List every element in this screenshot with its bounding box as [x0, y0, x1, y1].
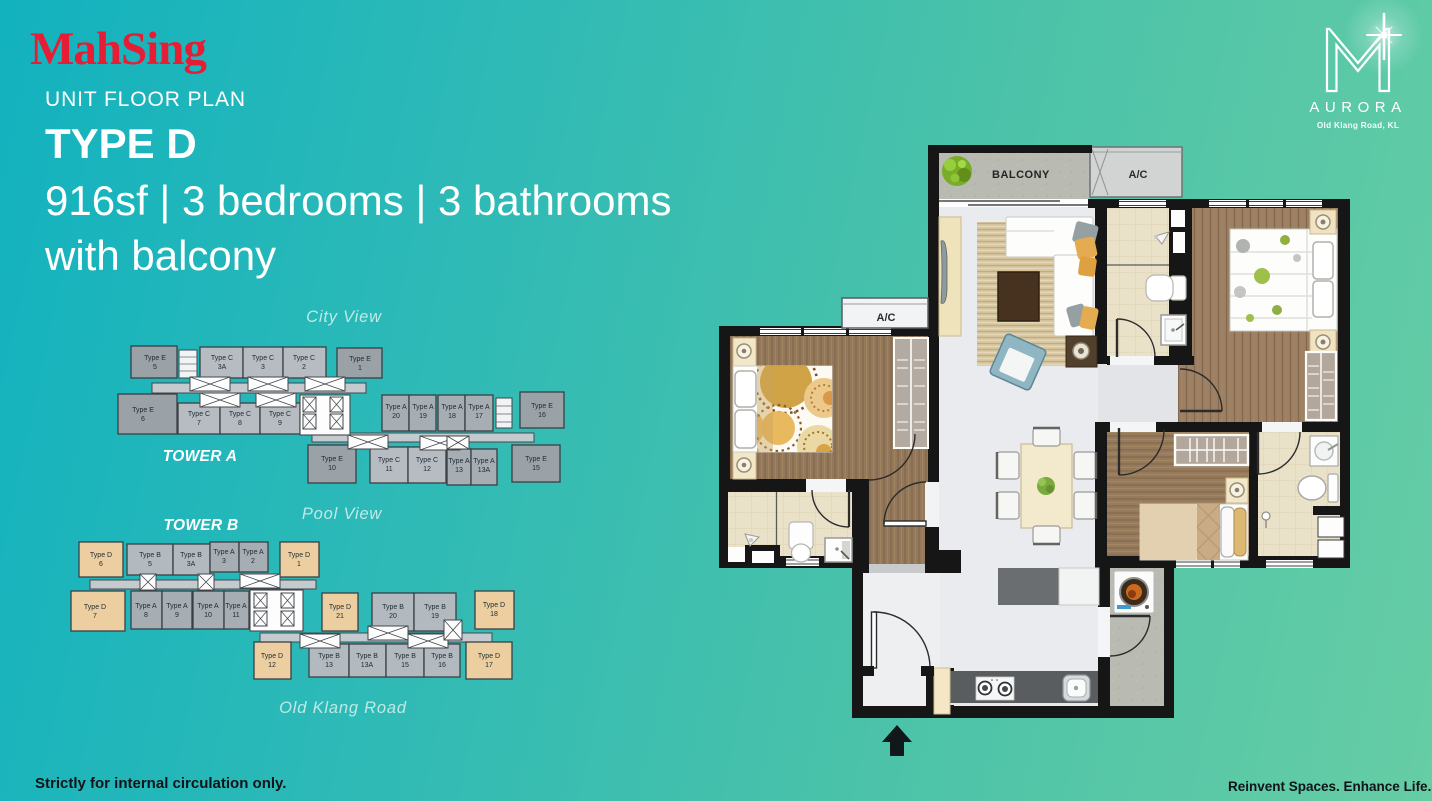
svg-text:Type B: Type B: [139, 552, 161, 559]
svg-text:17: 17: [485, 662, 493, 669]
svg-text:Type D: Type D: [288, 552, 310, 559]
svg-text:13A: 13A: [361, 662, 374, 669]
svg-text:11: 11: [385, 466, 392, 473]
svg-text:A/C: A/C: [1129, 169, 1148, 181]
svg-text:1: 1: [358, 365, 362, 372]
svg-text:3: 3: [222, 558, 226, 565]
svg-text:TOWER A: TOWER A: [163, 448, 237, 465]
svg-text:Type C: Type C: [293, 355, 315, 362]
svg-text:Type B: Type B: [180, 552, 202, 559]
svg-text:Type A: Type A: [242, 549, 264, 556]
svg-text:Type C: Type C: [188, 411, 210, 418]
svg-text:3A: 3A: [187, 561, 196, 568]
svg-text:Type C: Type C: [229, 411, 251, 418]
svg-text:13A: 13A: [478, 467, 491, 474]
svg-text:12: 12: [423, 466, 431, 473]
svg-text:Type E: Type E: [321, 456, 343, 463]
svg-text:Type D: Type D: [90, 552, 112, 559]
svg-text:9: 9: [175, 612, 179, 619]
svg-text:Type B: Type B: [394, 653, 416, 660]
svg-text:Type B: Type B: [424, 604, 446, 611]
svg-text:12: 12: [268, 662, 276, 669]
svg-text:10: 10: [204, 612, 212, 619]
svg-text:15: 15: [401, 662, 409, 669]
svg-text:Pool View: Pool View: [302, 505, 383, 523]
svg-text:Type B: Type B: [382, 604, 404, 611]
svg-text:8: 8: [238, 420, 242, 427]
svg-text:16: 16: [438, 662, 446, 669]
svg-text:13: 13: [325, 662, 333, 669]
svg-text:Old Klang Road, KL: Old Klang Road, KL: [1317, 121, 1399, 130]
svg-text:Type E: Type E: [132, 407, 154, 414]
svg-text:Type C: Type C: [211, 355, 233, 362]
svg-text:7: 7: [93, 613, 97, 620]
svg-text:Old Klang Road: Old Klang Road: [279, 699, 407, 717]
svg-text:City View: City View: [306, 308, 382, 326]
svg-text:20: 20: [392, 413, 400, 420]
svg-text:Type E: Type E: [349, 356, 371, 363]
svg-text:Type B: Type B: [356, 653, 378, 660]
svg-text:2: 2: [251, 558, 255, 565]
svg-text:Type A: Type A: [213, 549, 235, 556]
svg-text:Type E: Type E: [531, 403, 553, 410]
svg-text:BALCONY: BALCONY: [992, 169, 1050, 181]
svg-text:5: 5: [153, 364, 157, 371]
svg-text:Type A: Type A: [225, 603, 247, 610]
svg-text:3A: 3A: [218, 364, 227, 371]
svg-text:Type D: Type D: [483, 602, 505, 609]
svg-text:Type C: Type C: [269, 411, 291, 418]
svg-text:Type A: Type A: [385, 404, 407, 411]
svg-text:2: 2: [302, 364, 306, 371]
svg-text:Type A: Type A: [135, 603, 157, 610]
svg-text:5: 5: [148, 561, 152, 568]
svg-text:19: 19: [419, 413, 427, 420]
svg-text:A/C: A/C: [877, 312, 896, 324]
svg-text:1: 1: [297, 561, 301, 568]
svg-text:6: 6: [141, 416, 145, 423]
svg-text:21: 21: [336, 613, 344, 620]
svg-text:18: 18: [448, 413, 456, 420]
svg-text:Type B: Type B: [318, 653, 340, 660]
svg-text:Type A: Type A: [473, 458, 495, 465]
svg-text:Type C: Type C: [378, 457, 400, 464]
svg-text:18: 18: [490, 611, 498, 618]
svg-text:Type D: Type D: [478, 653, 500, 660]
svg-text:20: 20: [389, 613, 397, 620]
svg-text:AURORA: AURORA: [1309, 99, 1406, 116]
svg-text:Type A: Type A: [441, 404, 463, 411]
svg-text:Type E: Type E: [144, 355, 166, 362]
svg-text:7: 7: [197, 420, 201, 427]
svg-text:9: 9: [278, 420, 282, 427]
svg-text:TOWER B: TOWER B: [163, 517, 238, 534]
svg-text:6: 6: [99, 561, 103, 568]
svg-text:8: 8: [144, 612, 148, 619]
svg-text:Type A: Type A: [166, 603, 188, 610]
svg-text:Type D: Type D: [84, 604, 106, 611]
svg-text:17: 17: [475, 413, 483, 420]
svg-text:Type C: Type C: [252, 355, 274, 362]
svg-text:3: 3: [261, 364, 265, 371]
svg-text:Type A: Type A: [448, 458, 470, 465]
svg-text:19: 19: [431, 613, 439, 620]
svg-text:Type A: Type A: [468, 404, 490, 411]
svg-text:15: 15: [532, 465, 540, 472]
svg-text:10: 10: [328, 465, 336, 472]
svg-text:Type A: Type A: [197, 603, 219, 610]
svg-text:Type D: Type D: [329, 604, 351, 611]
svg-text:11: 11: [232, 612, 239, 619]
svg-text:13: 13: [455, 467, 463, 474]
svg-text:Type C: Type C: [416, 457, 438, 464]
svg-text:Type D: Type D: [261, 653, 283, 660]
svg-text:Type E: Type E: [525, 456, 547, 463]
svg-text:Type A: Type A: [412, 404, 434, 411]
svg-text:Type B: Type B: [431, 653, 453, 660]
svg-text:16: 16: [538, 412, 546, 419]
